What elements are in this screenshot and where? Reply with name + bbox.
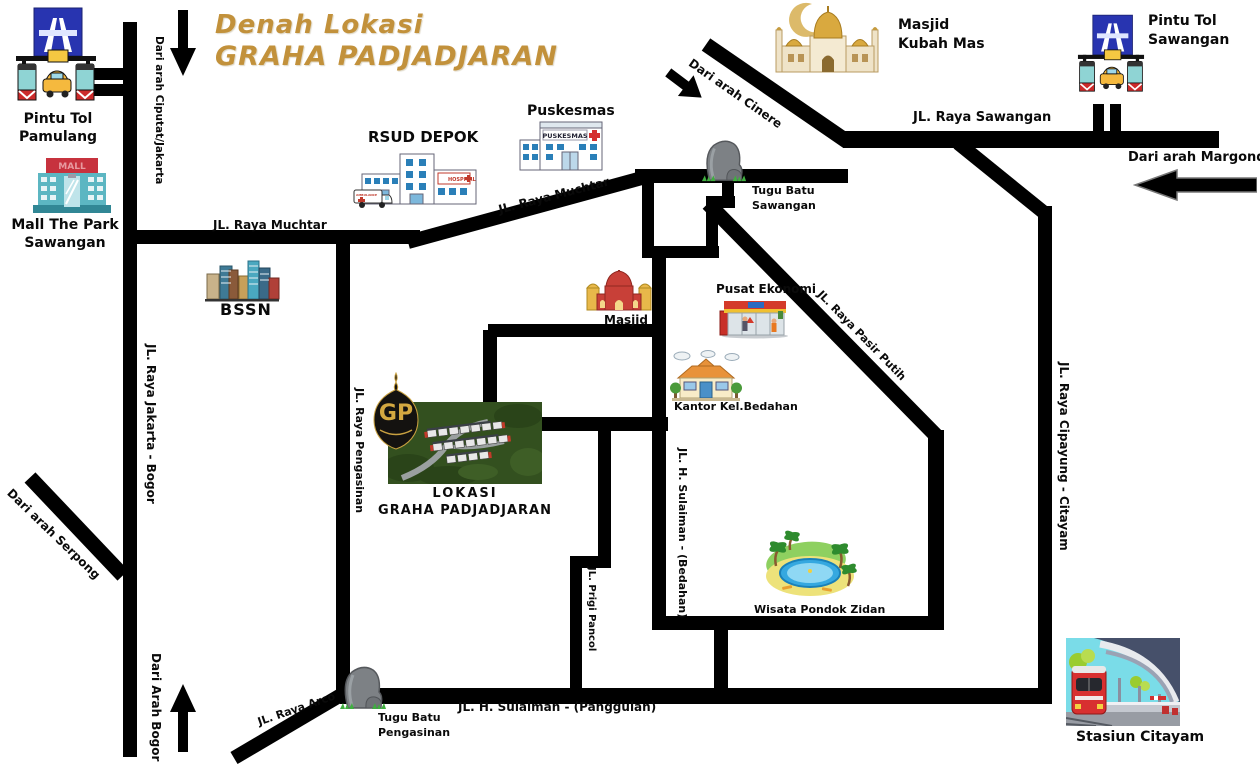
- road-sawangan-horizontal: [843, 131, 1219, 148]
- stasiun-citayam-photo: [1066, 638, 1180, 730]
- map-canvas: Denah Lokasi GRAHA PADJADJARAN Dari ara: [0, 0, 1260, 765]
- label-dari-ciputat: Dari arah Ciputat/Jakarta: [153, 36, 165, 184]
- label-lokasi: LOKASI: [388, 486, 542, 501]
- label-puskesmas: Puskesmas: [527, 103, 615, 119]
- label-pintu-tol-sawangan: Pintu Tol Sawangan: [1148, 12, 1229, 50]
- label-dari-margonda: Dari arah Margonda: [1128, 150, 1260, 165]
- shop-pusat-ekonomi-icon: [718, 295, 792, 343]
- bssn-buildings-icon: [203, 256, 281, 306]
- label-bssn: BSSN: [220, 300, 272, 319]
- road-wisata-connector-vertical: [714, 622, 728, 696]
- hospital-sign-text: HOSPITAL: [448, 177, 476, 183]
- label-rsud-depok: RSUD DEPOK: [368, 128, 478, 146]
- road-sawangan-toll-stub-1: [1093, 104, 1104, 133]
- label-pusat-ekonomi: Pusat Ekonomi: [716, 282, 816, 296]
- puskesmas-sign-text: PUSKESMAS: [542, 132, 587, 140]
- label-stasiun-citayam: Stasiun Citayam: [1076, 729, 1204, 745]
- map-title-line1: Denah Lokasi: [215, 10, 558, 41]
- label-jl-pengasinan: JL. Raya Pengasinan: [353, 388, 366, 513]
- label-jl-sulaiman-bedahan: JL. H. Sulaiman - (Bedahan): [676, 448, 689, 618]
- mosque-small-icon: [583, 270, 655, 316]
- label-jl-jakarta-bogor: JL. Raya Jakarta - Bogor: [144, 344, 158, 504]
- road-wisata-bottom-horizontal: [652, 616, 944, 630]
- road-prigi-pancol-upper: [598, 424, 611, 566]
- label-jl-sulaiman-panggulan: JL. H. Sulaiman - (Panggulan): [458, 700, 656, 714]
- road-muchtar-horizontal: [123, 230, 420, 244]
- label-masjid: Masjid: [604, 313, 648, 327]
- stone-monument-pengasinan-icon: [336, 662, 390, 716]
- label-jl-cipayung-citayam: JL. Raya Cipayung - Citayam: [1057, 362, 1071, 551]
- label-kantor-bedahan: Kantor Kel.Bedahan: [674, 400, 798, 413]
- road-upper-vertical: [642, 176, 654, 254]
- arrow-left-margonda-icon: [1133, 168, 1257, 206]
- road-pengasinan-vertical: [336, 237, 350, 697]
- road-sulaiman-panggulan-horizontal: [340, 688, 1052, 704]
- road-citayam-diagonal: [954, 138, 1051, 221]
- arrow-down-ciputat-icon: [168, 10, 198, 80]
- wisata-pondok-zidan-icon: [760, 530, 858, 606]
- label-jl-muchtar-horizontal: JL. Raya Muchtar: [213, 218, 327, 232]
- toll-gate-sawangan-icon: [1073, 8, 1149, 104]
- map-title: Denah Lokasi GRAHA PADJADJARAN: [215, 10, 558, 74]
- puskesmas-icon: PUSKESMAS: [516, 118, 608, 178]
- ambulance-sign-text: AMBULANCE: [356, 193, 377, 197]
- label-jl-prigi-pancol: JL. Prigi Pancol: [586, 567, 597, 651]
- road-sawangan-toll-stub-2: [1110, 104, 1121, 133]
- label-mall-the-park: Mall The Park Sawangan: [5, 216, 125, 252]
- label-jl-sawangan: JL. Raya Sawangan: [913, 110, 1051, 125]
- mosque-kubah-mas-icon: [768, 2, 886, 78]
- road-pasir-putih-vertical: [928, 430, 944, 630]
- label-pintu-tol-pamulang: Pintu Tol Pamulang: [5, 110, 111, 146]
- arrow-up-bogor-icon: [168, 682, 198, 756]
- mall-icon: MALL: [30, 156, 114, 220]
- road-cipayung-citayam-vertical: [1038, 206, 1052, 704]
- road-jakarta-bogor-vertical: [123, 22, 137, 757]
- label-masjid-kubah-mas: Masjid Kubah Mas: [898, 16, 985, 54]
- map-title-line2: GRAHA PADJADJARAN: [215, 41, 558, 73]
- road-prigi-pancol-lower: [570, 560, 582, 696]
- label-dari-bogor: Dari Arah Bogor: [149, 653, 163, 761]
- label-tugu-batu-sawangan: Tugu Batu Sawangan: [752, 183, 816, 214]
- label-wisata-pondok-zidan: Wisata Pondok Zidan: [754, 603, 885, 616]
- graha-padjadjaran-logo: GP: [366, 372, 426, 454]
- stone-monument-sawangan-icon: [698, 136, 750, 188]
- kantor-kelurahan-icon: [668, 350, 744, 406]
- mall-sign-text: MALL: [58, 162, 86, 172]
- gp-logo-text: GP: [379, 401, 413, 426]
- label-lokasi-graha: GRAHA PADJADJARAN: [348, 503, 582, 518]
- toll-gate-pamulang-icon: [10, 6, 102, 108]
- label-tugu-batu-pengasinan: Tugu Batu Pengasinan: [378, 710, 450, 741]
- hospital-rsud-icon: HOSPITAL AMBULANCE: [352, 148, 482, 214]
